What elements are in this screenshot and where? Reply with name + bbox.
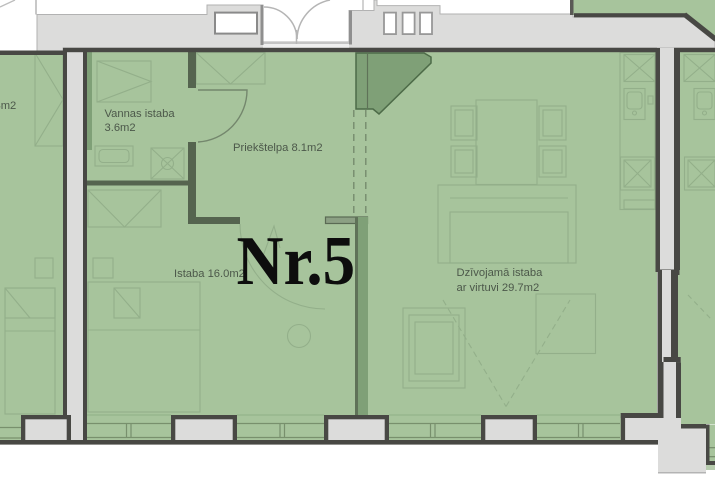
- svg-text:Istaba 16.0m2: Istaba 16.0m2: [174, 268, 245, 280]
- svg-text:3.6m2: 3.6m2: [105, 122, 136, 134]
- svg-text:Priekštelpa 8.1m2: Priekštelpa 8.1m2: [233, 142, 323, 154]
- svg-text:Vannas istaba: Vannas istaba: [105, 108, 176, 120]
- svg-text:ar virtuvi 29.7m2: ar virtuvi 29.7m2: [457, 282, 540, 294]
- svg-text:Dzīvojamā istaba: Dzīvojamā istaba: [457, 267, 544, 279]
- svg-text:Nr.5: Nr.5: [237, 222, 356, 300]
- svg-text:4m2: 4m2: [0, 100, 16, 112]
